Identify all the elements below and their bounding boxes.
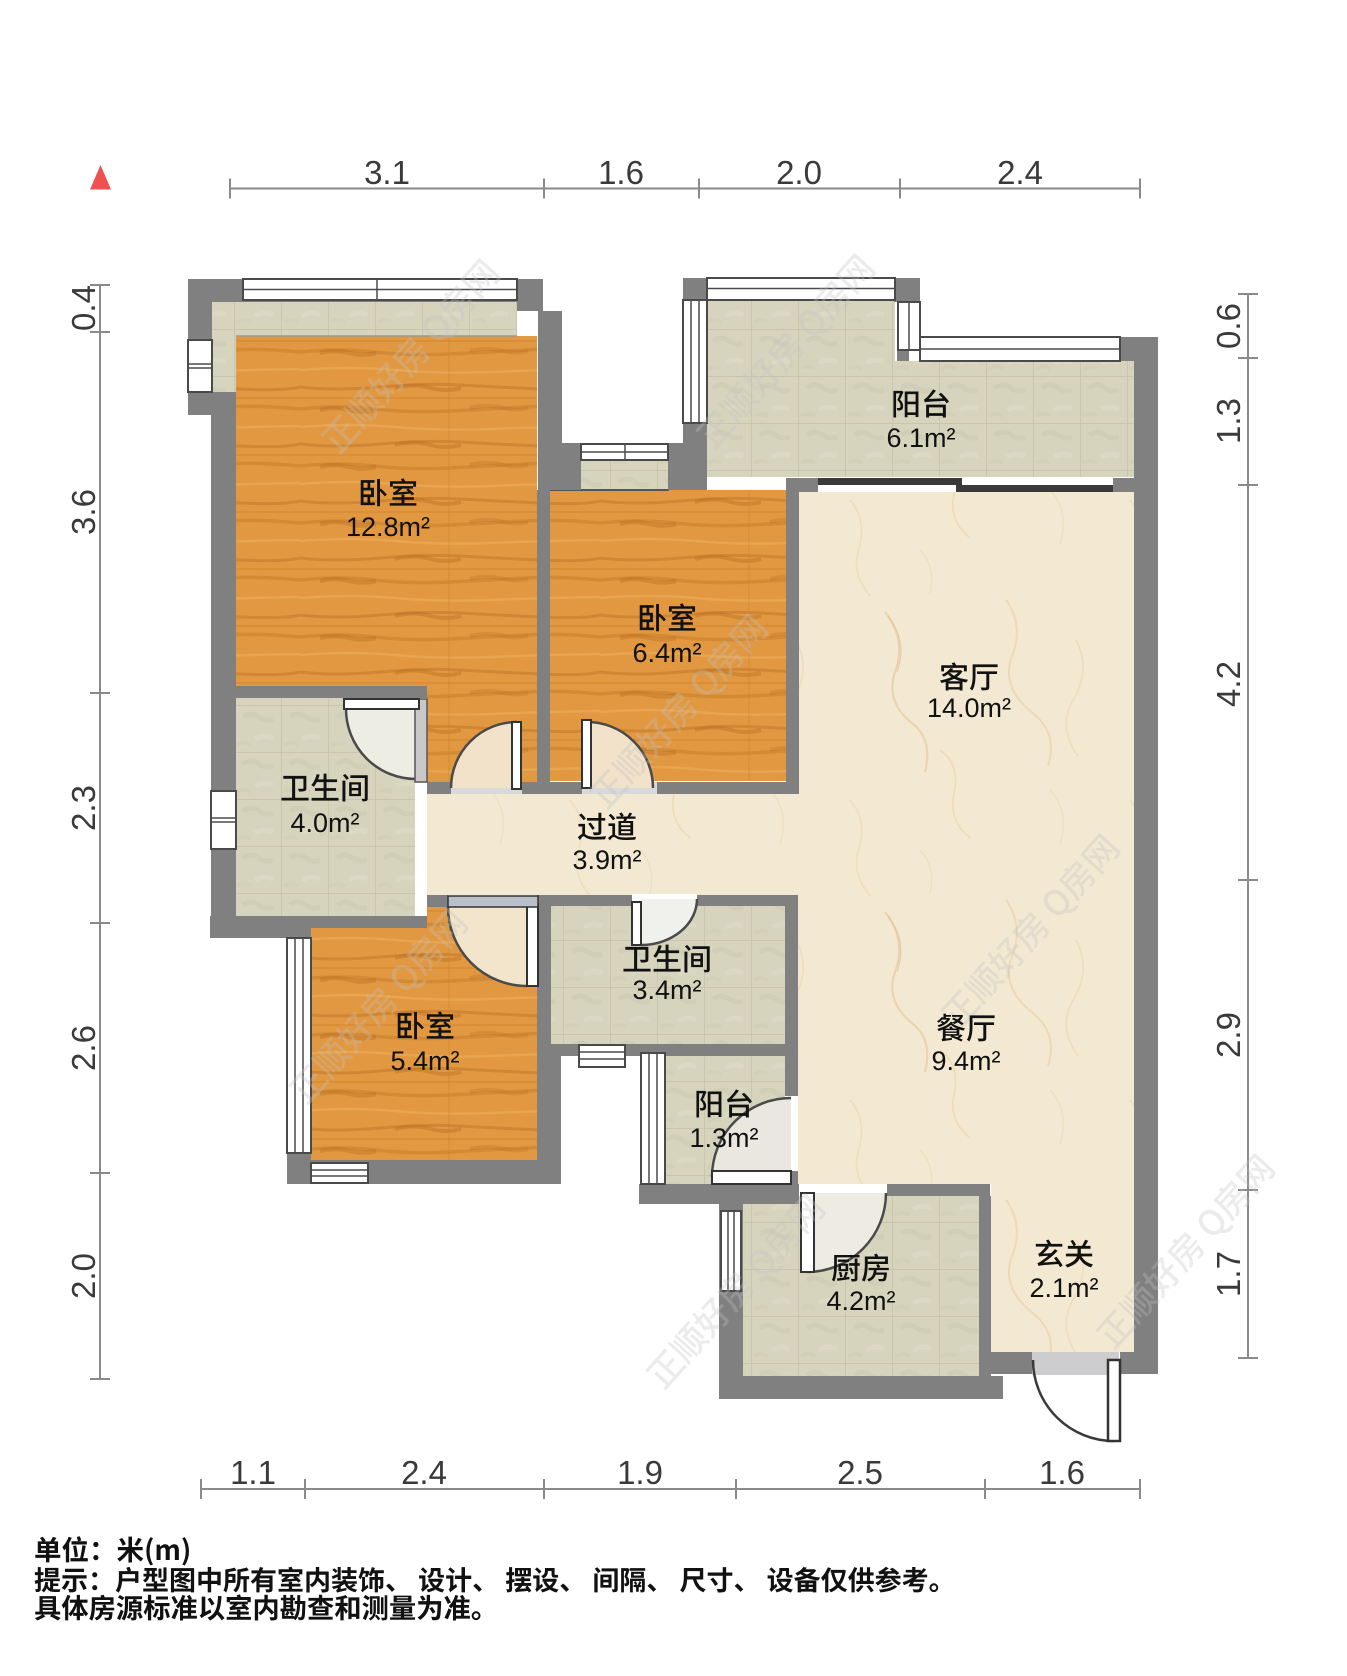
svg-text:9.4m²: 9.4m² [931,1046,1000,1076]
svg-text:6.1m²: 6.1m² [886,423,955,453]
svg-text:2.5: 2.5 [837,1454,883,1491]
svg-text:3.1: 3.1 [364,154,410,191]
svg-text:3.4m²: 3.4m² [632,975,701,1005]
svg-text:1.6: 1.6 [598,154,644,191]
svg-text:2.0: 2.0 [776,154,822,191]
svg-text:5.4m²: 5.4m² [390,1046,459,1076]
svg-text:1.1: 1.1 [230,1454,276,1491]
svg-text:1.6: 1.6 [1039,1454,1085,1491]
svg-text:14.0m²: 14.0m² [927,693,1011,723]
svg-text:1.7: 1.7 [1210,1251,1247,1297]
svg-text:2.4: 2.4 [401,1454,447,1491]
svg-text:4.2m²: 4.2m² [826,1286,895,1316]
svg-text:2.1m²: 2.1m² [1029,1273,1098,1303]
svg-text:2.9: 2.9 [1210,1012,1247,1058]
svg-text:1.3m²: 1.3m² [689,1123,758,1153]
svg-text:1.9: 1.9 [617,1454,663,1491]
svg-text:2.3: 2.3 [65,785,102,831]
svg-text:2.4: 2.4 [997,154,1043,191]
svg-text:2.0: 2.0 [65,1253,102,1299]
svg-text:3.6: 3.6 [65,489,102,535]
svg-text:0.4: 0.4 [65,285,102,331]
svg-text:4.2: 4.2 [1210,661,1247,707]
svg-text:4.0m²: 4.0m² [290,808,359,838]
svg-text:6.4m²: 6.4m² [632,638,701,668]
svg-text:12.8m²: 12.8m² [346,512,430,542]
svg-text:0.6: 0.6 [1210,303,1247,349]
svg-text:1.3: 1.3 [1210,398,1247,444]
svg-text:2.6: 2.6 [65,1025,102,1071]
svg-text:3.9m²: 3.9m² [572,845,641,875]
